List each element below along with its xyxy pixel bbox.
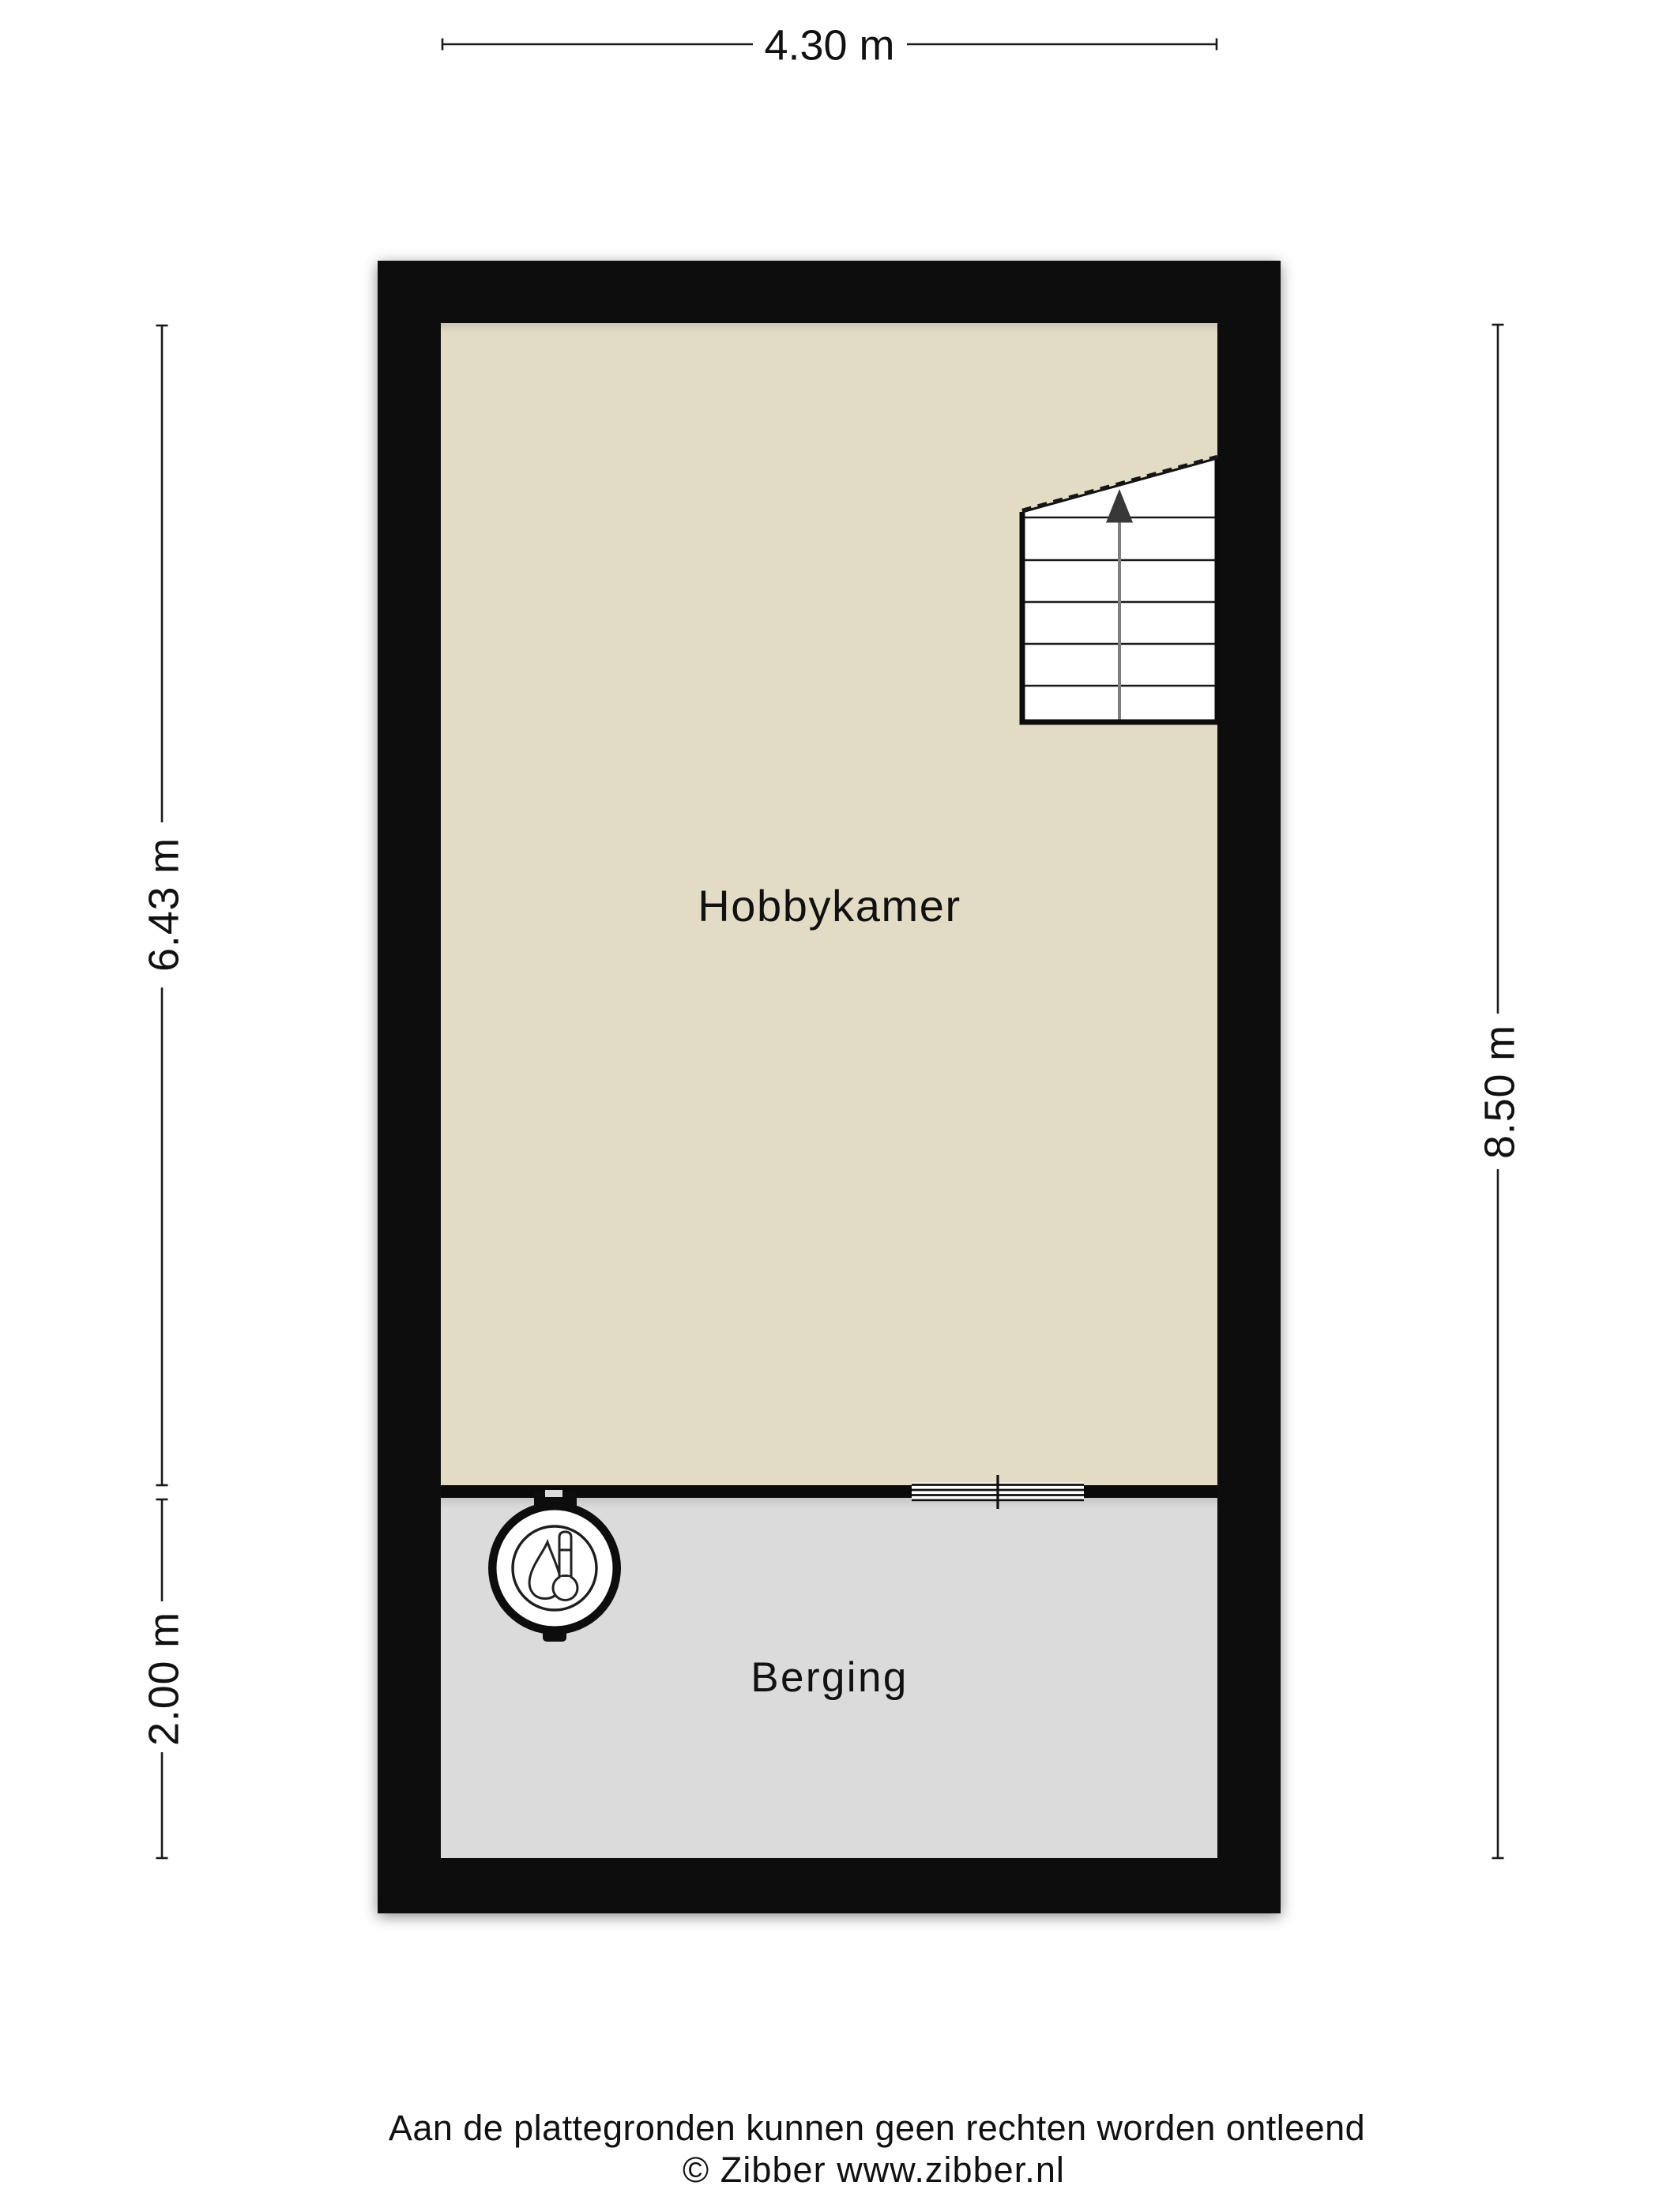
svg-text:Hobbykamer: Hobbykamer (698, 881, 961, 931)
svg-text:8.50 m: 8.50 m (1477, 1025, 1524, 1159)
svg-text:© Zibber www.zibber.nl: © Zibber www.zibber.nl (683, 2150, 1065, 2190)
svg-text:Berging: Berging (750, 1654, 908, 1701)
svg-text:Aan de plattegronden kunnen ge: Aan de plattegronden kunnen geen rechten… (389, 2108, 1365, 2148)
svg-text:6.43 m: 6.43 m (141, 837, 188, 972)
svg-text:4.30 m: 4.30 m (764, 22, 894, 70)
svg-text:2.00 m: 2.00 m (141, 1612, 188, 1746)
